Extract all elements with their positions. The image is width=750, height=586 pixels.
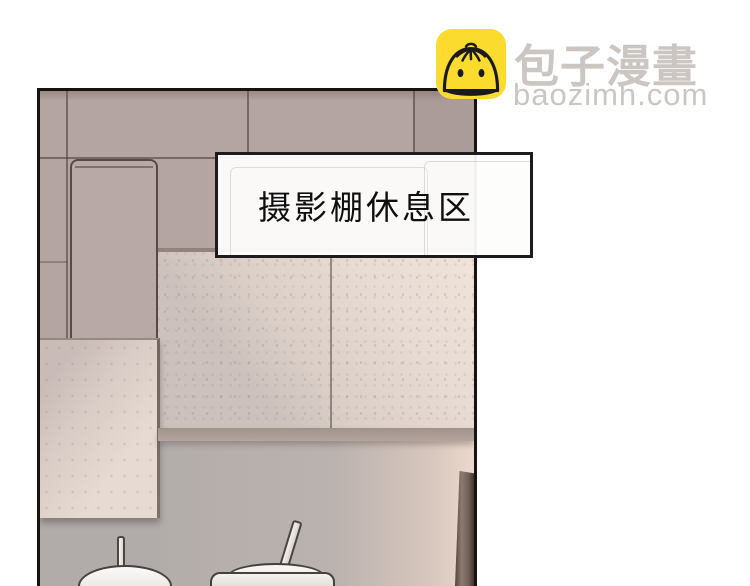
storage-cabinet bbox=[70, 159, 158, 338]
tile-seam bbox=[413, 91, 415, 153]
rice-cooker-right bbox=[208, 520, 335, 586]
cooker-lid-band bbox=[210, 572, 335, 586]
cooker-spout-icon bbox=[279, 520, 302, 568]
site-url: baozimh.com bbox=[513, 77, 708, 113]
tile-shade bbox=[413, 91, 474, 153]
tile-seam bbox=[40, 261, 67, 263]
scene-caption-text: 摄影棚休息区 bbox=[258, 181, 490, 229]
baozi-bun-face bbox=[436, 29, 506, 99]
tile-seam bbox=[247, 91, 249, 158]
comic-page[interactable]: 摄影棚休息区 包子漫畫 baozimh.com bbox=[0, 0, 750, 586]
cooker-lid bbox=[78, 565, 172, 586]
scene-caption-box: 摄影棚休息区 bbox=[215, 152, 533, 258]
wall-tiles-light bbox=[158, 250, 474, 430]
baozi-bun-icon bbox=[436, 29, 506, 99]
tile-seam bbox=[66, 91, 68, 338]
wall-light-panel bbox=[40, 338, 160, 518]
rice-cooker-left bbox=[78, 536, 172, 586]
wall-band bbox=[158, 428, 474, 441]
